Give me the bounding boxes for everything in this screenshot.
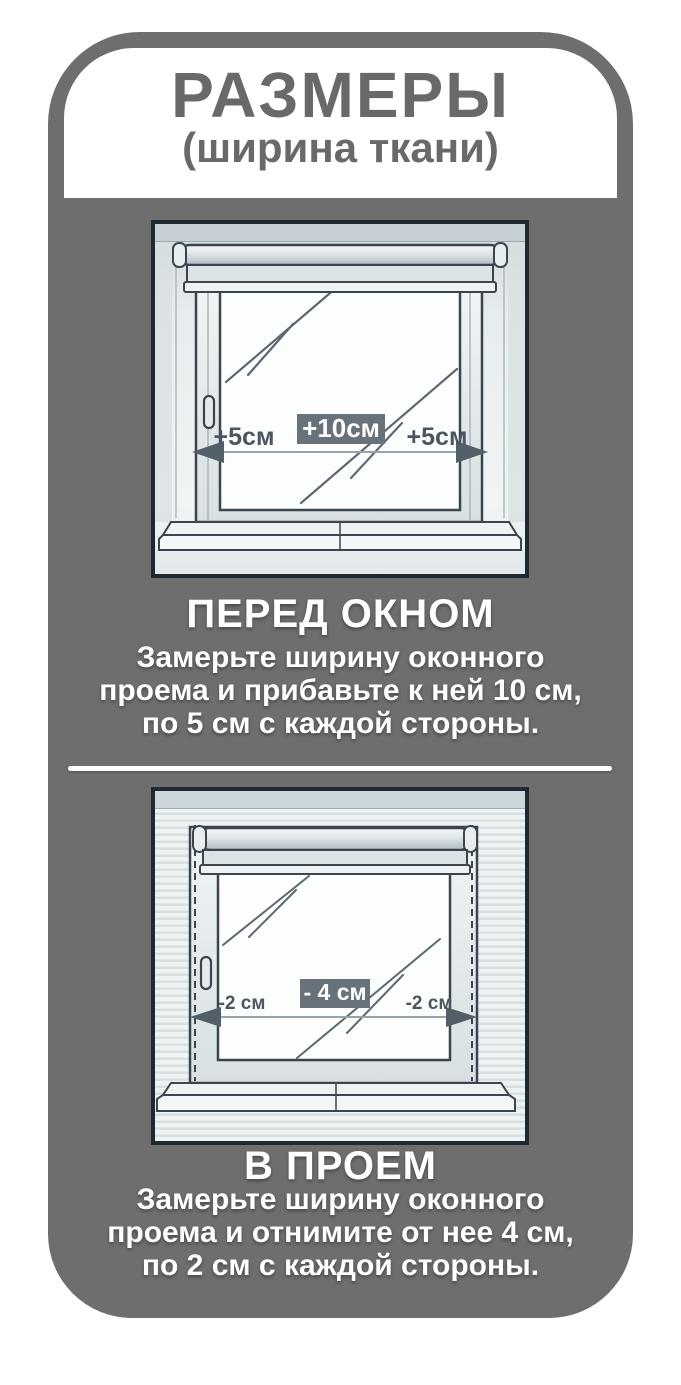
- window-diagram-front: +5см +5см +10см: [151, 220, 529, 578]
- roller-blind: [173, 243, 507, 292]
- illustration-window-front: +5см +5см +10см: [151, 220, 529, 578]
- body-line: по 5 см с каждой стороны.: [48, 707, 633, 740]
- body-line: проема и прибавьте к ней 10 см,: [48, 674, 633, 707]
- roller-blind: [193, 826, 477, 874]
- gray-panel: РАЗМЕРЫ (ширина ткани): [48, 32, 633, 1318]
- illustration-window-recess: -2 см -2 см - 4 см: [151, 787, 529, 1145]
- section-front-body: Замерьте ширину оконного проема и прибав…: [48, 641, 633, 740]
- measure-badge-label: +10см: [302, 413, 380, 443]
- measure-label-right: -2 см: [406, 993, 453, 1014]
- section-front-heading: ПЕРЕД ОКНОМ: [48, 592, 633, 637]
- window-diagram-recess: -2 см -2 см - 4 см: [151, 787, 529, 1145]
- body-line: Замерьте ширину оконного: [48, 1183, 633, 1216]
- windowsill: [159, 522, 521, 550]
- body-line: проема и отнимите от нее 4 см,: [48, 1216, 633, 1249]
- windowsill: [157, 1083, 515, 1111]
- measure-label-right: +5см: [407, 423, 468, 451]
- header-panel: РАЗМЕРЫ (ширина ткани): [64, 48, 617, 198]
- body-line: Замерьте ширину оконного: [48, 641, 633, 674]
- measure-badge-label: - 4 см: [303, 979, 366, 1005]
- section-recess-body: Замерьте ширину оконного проема и отними…: [48, 1183, 633, 1282]
- page-subtitle: (ширина ткани): [64, 126, 617, 170]
- measuring-infographic: РАЗМЕРЫ (ширина ткани): [0, 0, 681, 1385]
- section-divider: [68, 766, 612, 771]
- measure-label-left: +5см: [214, 423, 275, 451]
- measure-label-left: -2 см: [219, 993, 266, 1014]
- window-handle: [204, 396, 214, 428]
- body-line: по 2 см с каждой стороны.: [48, 1249, 633, 1282]
- page-title: РАЗМЕРЫ: [64, 62, 617, 128]
- window-handle: [201, 957, 211, 989]
